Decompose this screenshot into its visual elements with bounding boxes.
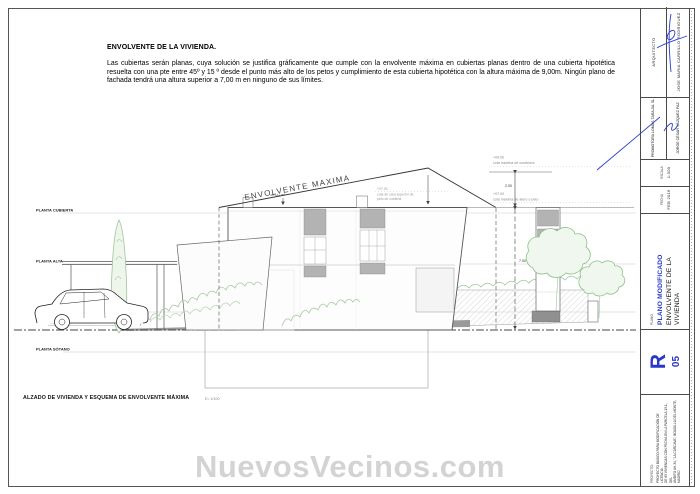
scale-label: ESCALA bbox=[660, 166, 664, 179]
sheet-number: 05 bbox=[671, 329, 682, 394]
plano-status: PLANO MODIFICADO bbox=[657, 217, 664, 325]
plano-box: PLANO PLANO MODIFICADO ENVOLVENTE DE LA … bbox=[641, 214, 689, 330]
plano-label: PLANO bbox=[650, 217, 654, 325]
promoter-box: PROMOTORA LOMAS TARAJAL SL JORGE CÉSAR V… bbox=[641, 98, 689, 160]
promoter-company: PROMOTORA LOMAS TARAJAL SL bbox=[641, 97, 667, 159]
architect-name: JOSE MARIA CARRILLO RODRIGUEZ bbox=[667, 7, 690, 97]
date-value: FEB 2016 bbox=[666, 189, 671, 209]
architect-role-label: ARQUITECTO bbox=[641, 7, 667, 97]
description-paragraph: Las cubiertas serán planas, cuya solució… bbox=[107, 60, 615, 86]
drawing-caption: ALZADO DE VIVIENDA Y ESQUEMA DE ENVOLVEN… bbox=[23, 395, 189, 401]
promoter-name: JORGE CÉSAR VÁZQUEZ PAZ bbox=[667, 97, 690, 159]
date-box: FECHA FEB 2016 bbox=[641, 187, 689, 214]
scale-box: ESCALA 1:300 bbox=[641, 160, 689, 187]
revision-letter: R bbox=[649, 329, 669, 394]
title-block-column: ARQUITECTO JOSE MARIA CARRILLO RODRIGUEZ… bbox=[641, 8, 690, 487]
watermark: NuevosVecinos.com bbox=[0, 449, 700, 485]
plano-title: ENVOLVENTE DE LA VIVIENDA bbox=[666, 245, 681, 325]
scale-value: 1:300 bbox=[666, 167, 671, 179]
title-block: ARQUITECTO JOSE MARIA CARRILLO RODRIGUEZ… bbox=[640, 8, 695, 487]
fine-print-strip bbox=[691, 11, 692, 484]
section-heading: ENVOLVENTE DE LA VIVIENDA. bbox=[107, 44, 216, 51]
date-label: FECHA bbox=[660, 194, 664, 205]
architect-box: ARQUITECTO JOSE MARIA CARRILLO RODRIGUEZ bbox=[641, 8, 689, 98]
revision-box: R 05 bbox=[641, 330, 689, 395]
drawing-caption-scale: E= 1/100 bbox=[205, 397, 220, 401]
